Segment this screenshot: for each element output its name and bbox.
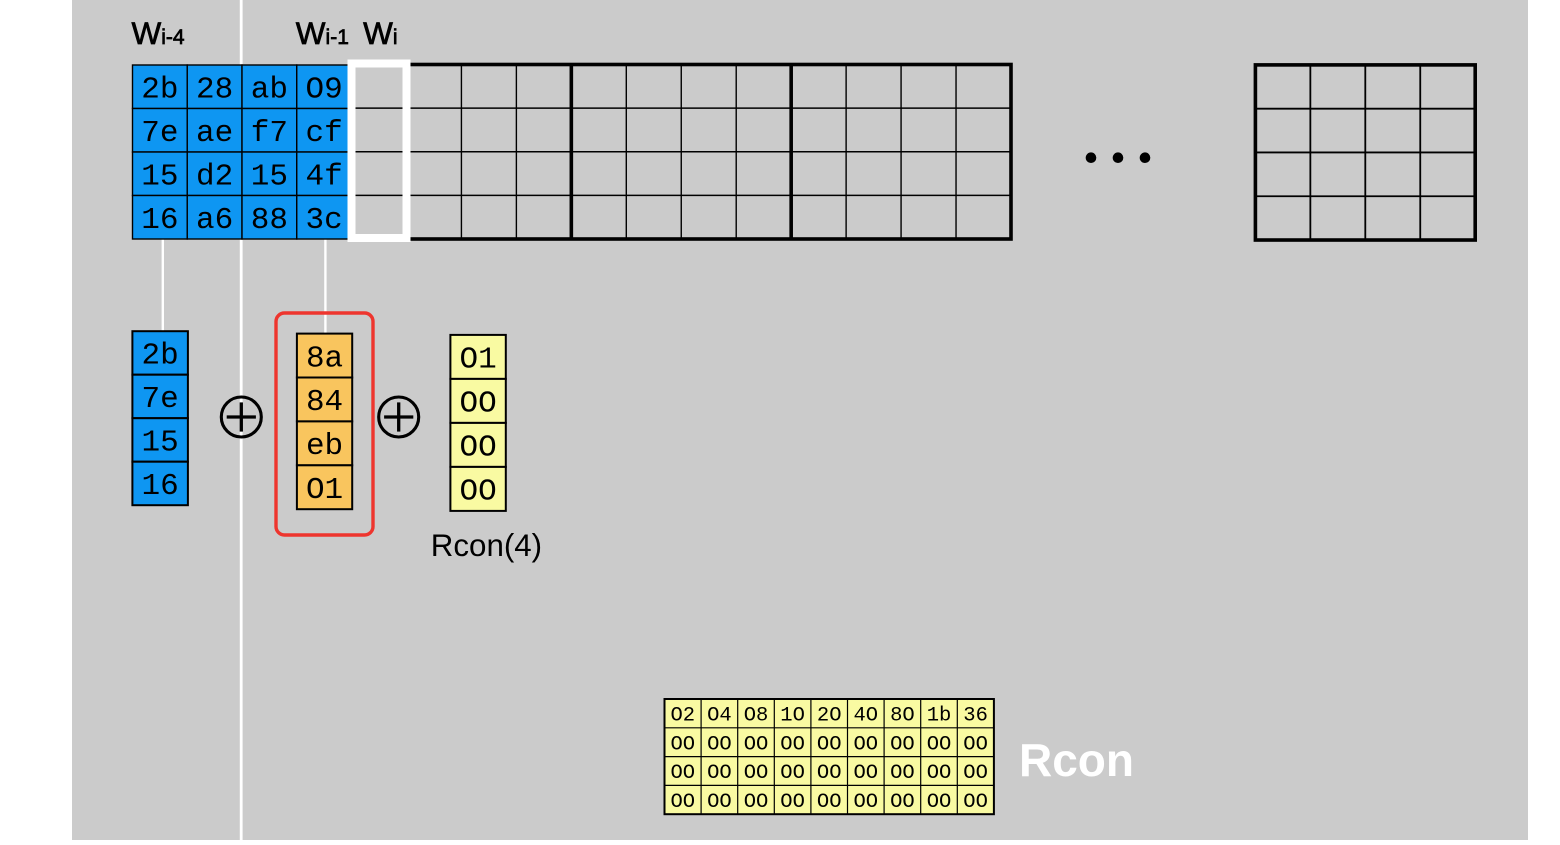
svg-text:OO: OO bbox=[670, 733, 695, 756]
svg-text:84: 84 bbox=[306, 385, 343, 420]
svg-text:OO: OO bbox=[817, 733, 842, 756]
svg-text:Wi: Wi bbox=[363, 15, 397, 51]
svg-text:ab: ab bbox=[251, 72, 288, 107]
svg-text:OO: OO bbox=[459, 431, 496, 466]
svg-text:OO: OO bbox=[963, 762, 988, 785]
svg-text:OO: OO bbox=[707, 762, 732, 785]
svg-text:a6: a6 bbox=[196, 203, 233, 238]
svg-text:15: 15 bbox=[142, 426, 179, 461]
svg-text:Rcon(4): Rcon(4) bbox=[431, 528, 542, 563]
svg-text:Rcon: Rcon bbox=[1019, 734, 1134, 786]
svg-text:8O: 8O bbox=[890, 705, 915, 728]
svg-text:8a: 8a bbox=[306, 341, 343, 376]
svg-text:OO: OO bbox=[780, 762, 805, 785]
svg-text:OO: OO bbox=[707, 791, 732, 814]
svg-text:O2: O2 bbox=[670, 705, 695, 728]
svg-text:OO: OO bbox=[853, 762, 878, 785]
svg-text:O1: O1 bbox=[306, 473, 343, 508]
svg-text:15: 15 bbox=[141, 159, 178, 194]
svg-text:OO: OO bbox=[963, 733, 988, 756]
svg-text:OO: OO bbox=[853, 791, 878, 814]
svg-text:OO: OO bbox=[890, 791, 915, 814]
svg-text:1b: 1b bbox=[927, 705, 952, 728]
svg-text:O1: O1 bbox=[459, 343, 496, 378]
svg-text:16: 16 bbox=[142, 469, 179, 504]
svg-text:7e: 7e bbox=[142, 382, 179, 417]
svg-text:1O: 1O bbox=[780, 705, 805, 728]
svg-text:OO: OO bbox=[744, 733, 769, 756]
svg-text:OO: OO bbox=[853, 733, 878, 756]
svg-text:2O: 2O bbox=[817, 705, 842, 728]
svg-text:OO: OO bbox=[780, 733, 805, 756]
svg-text:OO: OO bbox=[670, 791, 695, 814]
svg-text:eb: eb bbox=[306, 429, 343, 464]
svg-text:OO: OO bbox=[927, 791, 952, 814]
svg-text:OO: OO bbox=[927, 733, 952, 756]
svg-text:O8: O8 bbox=[744, 705, 769, 728]
svg-text:OO: OO bbox=[817, 791, 842, 814]
svg-text:f7: f7 bbox=[251, 116, 288, 151]
svg-text:OO: OO bbox=[459, 475, 496, 510]
svg-text:OO: OO bbox=[890, 733, 915, 756]
svg-text:4O: 4O bbox=[853, 705, 878, 728]
svg-text:OO: OO bbox=[744, 762, 769, 785]
svg-text:OO: OO bbox=[707, 733, 732, 756]
svg-text:OO: OO bbox=[744, 791, 769, 814]
svg-text:OO: OO bbox=[780, 791, 805, 814]
svg-text:OO: OO bbox=[890, 762, 915, 785]
svg-text:4f: 4f bbox=[306, 159, 343, 194]
svg-text:2b: 2b bbox=[142, 339, 179, 374]
svg-text:cf: cf bbox=[306, 116, 343, 151]
svg-text:OO: OO bbox=[927, 762, 952, 785]
svg-text:16: 16 bbox=[141, 203, 178, 238]
svg-text:7e: 7e bbox=[141, 116, 178, 151]
svg-text:OO: OO bbox=[817, 762, 842, 785]
svg-text:O9: O9 bbox=[306, 72, 343, 107]
svg-text:O4: O4 bbox=[707, 705, 732, 728]
svg-text:OO: OO bbox=[963, 791, 988, 814]
svg-text:15: 15 bbox=[251, 159, 288, 194]
svg-text:OO: OO bbox=[670, 762, 695, 785]
svg-text:28: 28 bbox=[196, 72, 233, 107]
svg-text:3c: 3c bbox=[306, 203, 343, 238]
svg-text:2b: 2b bbox=[141, 72, 178, 107]
svg-text:36: 36 bbox=[963, 705, 988, 728]
svg-text:d2: d2 bbox=[196, 159, 233, 194]
svg-text:ae: ae bbox=[196, 116, 233, 151]
svg-text:OO: OO bbox=[459, 387, 496, 422]
svg-text:88: 88 bbox=[251, 203, 288, 238]
